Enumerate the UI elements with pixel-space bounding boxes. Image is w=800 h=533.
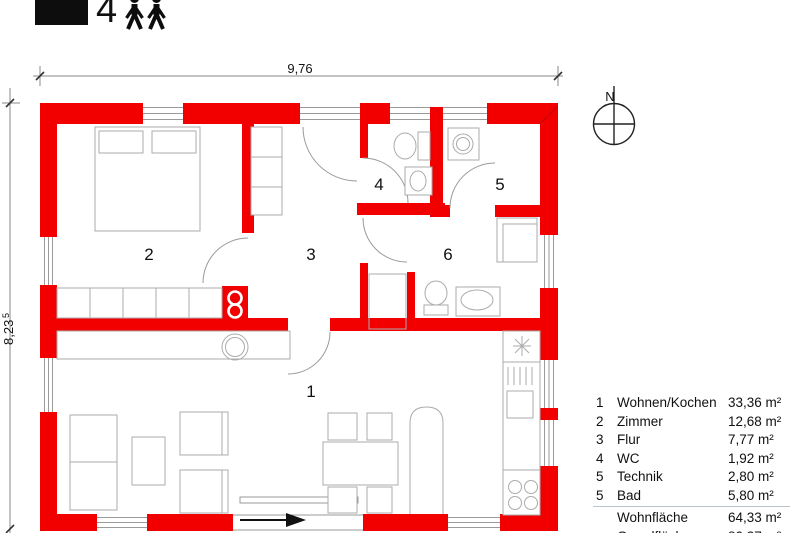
- legend-room-name: Bad: [617, 487, 641, 506]
- legend-summary-label: Grundfläche: [617, 528, 691, 533]
- room-label-4: 4: [374, 175, 383, 194]
- legend-room-number: 2: [596, 413, 610, 432]
- north-label: N: [605, 89, 614, 104]
- legend-room-number: 1: [596, 394, 610, 413]
- legend-room-number: 3: [596, 431, 610, 450]
- legend-room-area: 2,80 m²: [728, 468, 774, 487]
- legend-room-name: Wohnen/Kochen: [617, 394, 717, 413]
- legend-row: 1 Wohnen/Kochen 33,36 m²: [593, 394, 793, 413]
- room-label-3: 3: [306, 245, 315, 264]
- cooktop: [222, 286, 248, 318]
- legend-room-area: 5,80 m²: [728, 487, 774, 506]
- floor-plan-page: 4 9,76 8,23 5: [0, 0, 800, 533]
- legend-row: 5 Bad 5,80 m²: [593, 487, 793, 506]
- legend-room-number: 5: [596, 468, 610, 487]
- legend-room-number: 5: [596, 487, 610, 506]
- legend-summary-label: Wohnfläche: [617, 509, 688, 528]
- legend-room-name: Zimmer: [617, 413, 663, 432]
- legend-summary-area: 64,33 m²: [728, 509, 781, 528]
- legend-room-name: Technik: [617, 468, 663, 487]
- height-dimension: 8,23: [1, 320, 16, 345]
- legend-room-number: 4: [596, 450, 610, 469]
- room-label-5: 5: [495, 175, 504, 194]
- room-label-2: 2: [144, 245, 153, 264]
- legend-room-area: 7,77 m²: [728, 431, 774, 450]
- width-dimension: 9,76: [287, 61, 312, 76]
- room-label-1: 1: [306, 382, 315, 401]
- legend-row: 4 WC 1,92 m²: [593, 450, 793, 469]
- legend-summary-row: Grundfläche 80,37 m²: [593, 528, 793, 533]
- legend-room-area: 12,68 m²: [728, 413, 781, 432]
- legend-summary-area: 80,37 m²: [728, 528, 781, 533]
- legend-row: 5 Technik 2,80 m²: [593, 468, 793, 487]
- legend-room-area: 1,92 m²: [728, 450, 774, 469]
- legend-room-name: Flur: [617, 431, 640, 450]
- legend-summary-row: Wohnfläche 64,33 m²: [593, 509, 793, 528]
- legend-room-area: 33,36 m²: [728, 394, 781, 413]
- room-label-6: 6: [443, 245, 452, 264]
- legend-row: 2 Zimmer 12,68 m²: [593, 413, 793, 432]
- height-dimension-sup: 5: [1, 313, 11, 318]
- legend-room-name: WC: [617, 450, 640, 469]
- legend-separator: [593, 506, 790, 507]
- legend-row: 3 Flur 7,77 m²: [593, 431, 793, 450]
